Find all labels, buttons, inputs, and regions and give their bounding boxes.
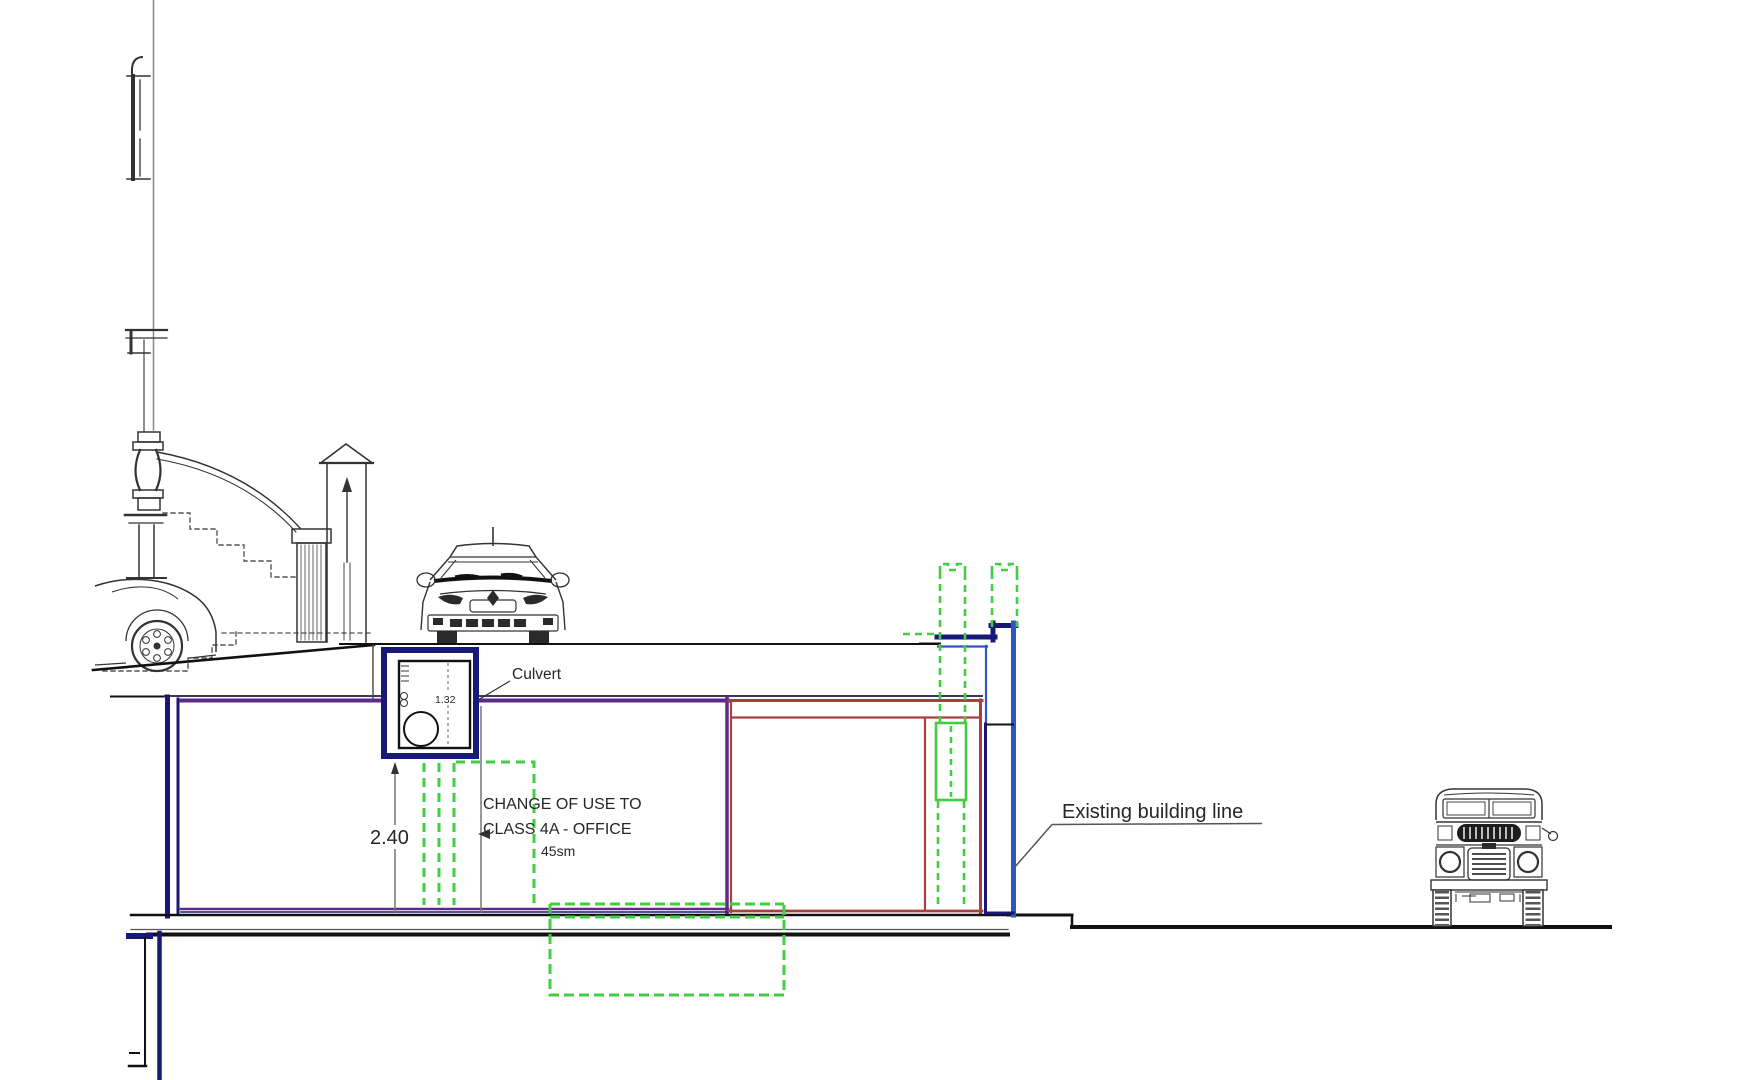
section-drawing-svg: 1.32 Culvert 2.40 CHANGE OF USE TO CLASS… (0, 0, 1755, 1080)
leader-line (1014, 825, 1052, 869)
side-mirror (1549, 832, 1558, 841)
land-rover-front-view (1431, 789, 1558, 926)
right-mirror (551, 573, 569, 587)
change-of-use-annotation: CHANGE OF USE TO CLASS 4A - OFFICE 45sm (483, 796, 642, 859)
up-arrow-icon (342, 477, 352, 492)
dashed-stair-line (163, 513, 298, 577)
green-dashed-verticals (424, 763, 454, 905)
dim-arrow-up-icon (391, 762, 399, 774)
left-mirror (417, 573, 435, 587)
culvert-detail: 1.32 Culvert (384, 650, 562, 756)
left-building-elevation (103, 0, 373, 671)
change-of-use-line2: CLASS 4A - OFFICE (483, 821, 631, 838)
left-tyre (437, 631, 457, 643)
culvert-width-dim: 1.32 (435, 694, 456, 706)
change-of-use-line3: 45sm (541, 843, 575, 859)
fluted-column (292, 529, 331, 642)
right-headlamp (1518, 852, 1538, 872)
existing-building-line-label: Existing building line (1062, 801, 1243, 823)
right-tyre (529, 631, 549, 643)
office-room-outline (729, 700, 982, 913)
green-chimney-right (992, 564, 1017, 627)
left-headlight (438, 595, 463, 605)
left-headlamp (1440, 852, 1460, 872)
architectural-section-drawing: 1.32 Culvert 2.40 CHANGE OF USE TO CLASS… (0, 0, 1755, 1080)
existing-building-line-annotation: Existing building line (1014, 801, 1262, 868)
right-headlight (523, 595, 548, 605)
pavement-lines (1008, 915, 1610, 927)
change-of-use-line1: CHANGE OF USE TO (483, 796, 642, 813)
windscreen-base (434, 578, 552, 582)
proposed-green-dashed-elements (424, 564, 1017, 995)
bumper-slats (433, 618, 553, 627)
car-side-view (95, 579, 216, 671)
room-height-dim: 2.40 (370, 827, 409, 849)
badge-icon (487, 590, 499, 606)
existing-building-wall-section (920, 623, 1016, 915)
car-front-view (417, 527, 569, 643)
floor-and-foundation-lines (129, 915, 1008, 1080)
culvert-label: Culvert (512, 666, 562, 683)
culvert-leader-line (478, 681, 510, 700)
bumper (1431, 880, 1547, 890)
